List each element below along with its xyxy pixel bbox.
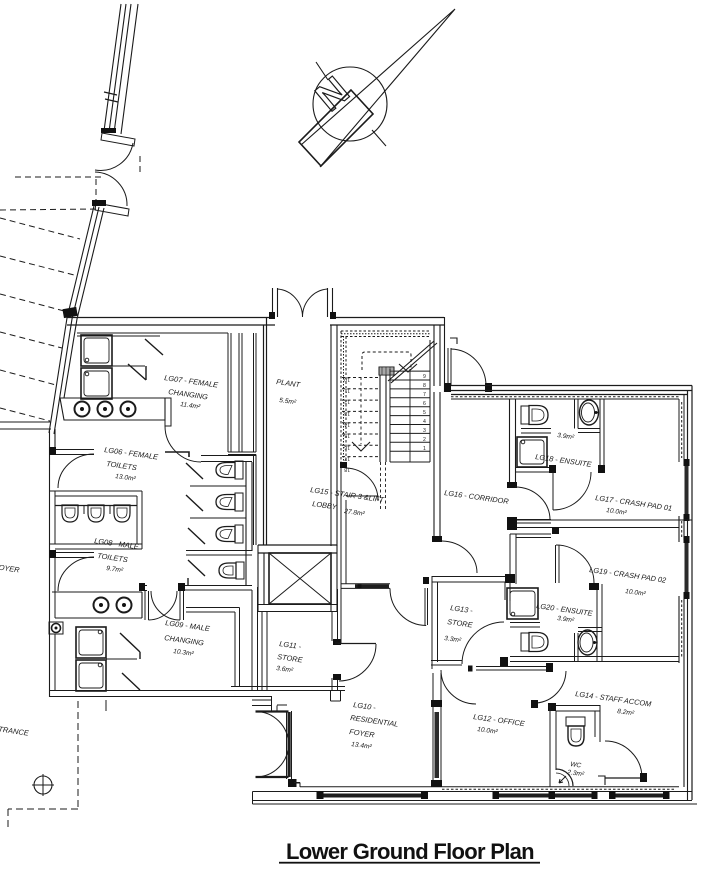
svg-text:RESIDENTIAL: RESIDENTIAL	[350, 713, 399, 729]
svg-text:4: 4	[423, 419, 426, 425]
svg-text:CHANGING: CHANGING	[164, 633, 205, 647]
svg-text:10: 10	[344, 376, 350, 382]
svg-text:16: 16	[344, 444, 350, 450]
svg-text:14: 14	[344, 421, 350, 427]
svg-text:FOYER: FOYER	[0, 562, 21, 575]
svg-text:LG19 - CRASH PAD 02: LG19 - CRASH PAD 02	[589, 565, 667, 585]
svg-text:LG10 -: LG10 -	[353, 700, 377, 712]
svg-text:9: 9	[423, 374, 426, 380]
svg-text:PLANT: PLANT	[276, 377, 301, 389]
svg-text:17: 17	[344, 455, 350, 461]
svg-text:STORE: STORE	[277, 652, 303, 664]
svg-text:ENTRANCE: ENTRANCE	[0, 723, 29, 738]
svg-text:13.0m²: 13.0m²	[115, 473, 137, 483]
svg-text:10.0m²: 10.0m²	[606, 507, 628, 517]
svg-text:LG11 -: LG11 -	[279, 639, 303, 651]
svg-text:3.3m²: 3.3m²	[444, 635, 462, 644]
svg-text:10.0m²: 10.0m²	[477, 726, 499, 736]
svg-text:LG16 - CORRIDOR: LG16 - CORRIDOR	[444, 488, 510, 506]
svg-text:WC: WC	[570, 761, 582, 769]
svg-text:8: 8	[423, 383, 426, 389]
svg-text:8.2m²: 8.2m²	[617, 708, 635, 717]
svg-text:11.4m²: 11.4m²	[180, 401, 202, 411]
svg-text:9.7m²: 9.7m²	[106, 565, 124, 574]
svg-text:13.4m²: 13.4m²	[351, 741, 373, 751]
svg-text:2.3m²: 2.3m²	[566, 769, 585, 779]
svg-text:13: 13	[344, 410, 350, 416]
svg-text:5: 5	[423, 410, 426, 416]
svg-text:7: 7	[423, 392, 426, 398]
svg-text:CHANGING: CHANGING	[168, 387, 209, 401]
svg-text:15: 15	[344, 432, 350, 438]
svg-text:FOYER: FOYER	[349, 727, 376, 740]
svg-text:3.9m²: 3.9m²	[557, 432, 575, 441]
svg-text:3.6m²: 3.6m²	[276, 665, 294, 674]
svg-text:Lower Ground Floor Plan: Lower Ground Floor Plan	[286, 839, 534, 864]
svg-text:10.0m²: 10.0m²	[625, 588, 647, 598]
svg-text:5.5m²: 5.5m²	[279, 397, 297, 406]
svg-text:STORE: STORE	[447, 617, 473, 629]
svg-text:N: N	[308, 69, 357, 120]
svg-text:LG13 -: LG13 -	[450, 603, 474, 615]
svg-text:12: 12	[344, 398, 350, 404]
svg-text:LOBBY: LOBBY	[312, 499, 339, 511]
svg-text:3: 3	[423, 428, 426, 434]
svg-text:TOILETS: TOILETS	[106, 459, 138, 472]
svg-text:LG09 - MALE: LG09 - MALE	[165, 618, 211, 633]
svg-text:18: 18	[344, 466, 350, 472]
svg-text:2: 2	[423, 437, 426, 443]
svg-text:6: 6	[423, 401, 426, 407]
svg-text:1: 1	[423, 446, 426, 452]
svg-text:3.9m²: 3.9m²	[557, 615, 575, 624]
svg-text:TOILETS: TOILETS	[97, 551, 129, 564]
svg-text:11: 11	[345, 387, 350, 393]
svg-text:10.3m²: 10.3m²	[173, 648, 195, 658]
